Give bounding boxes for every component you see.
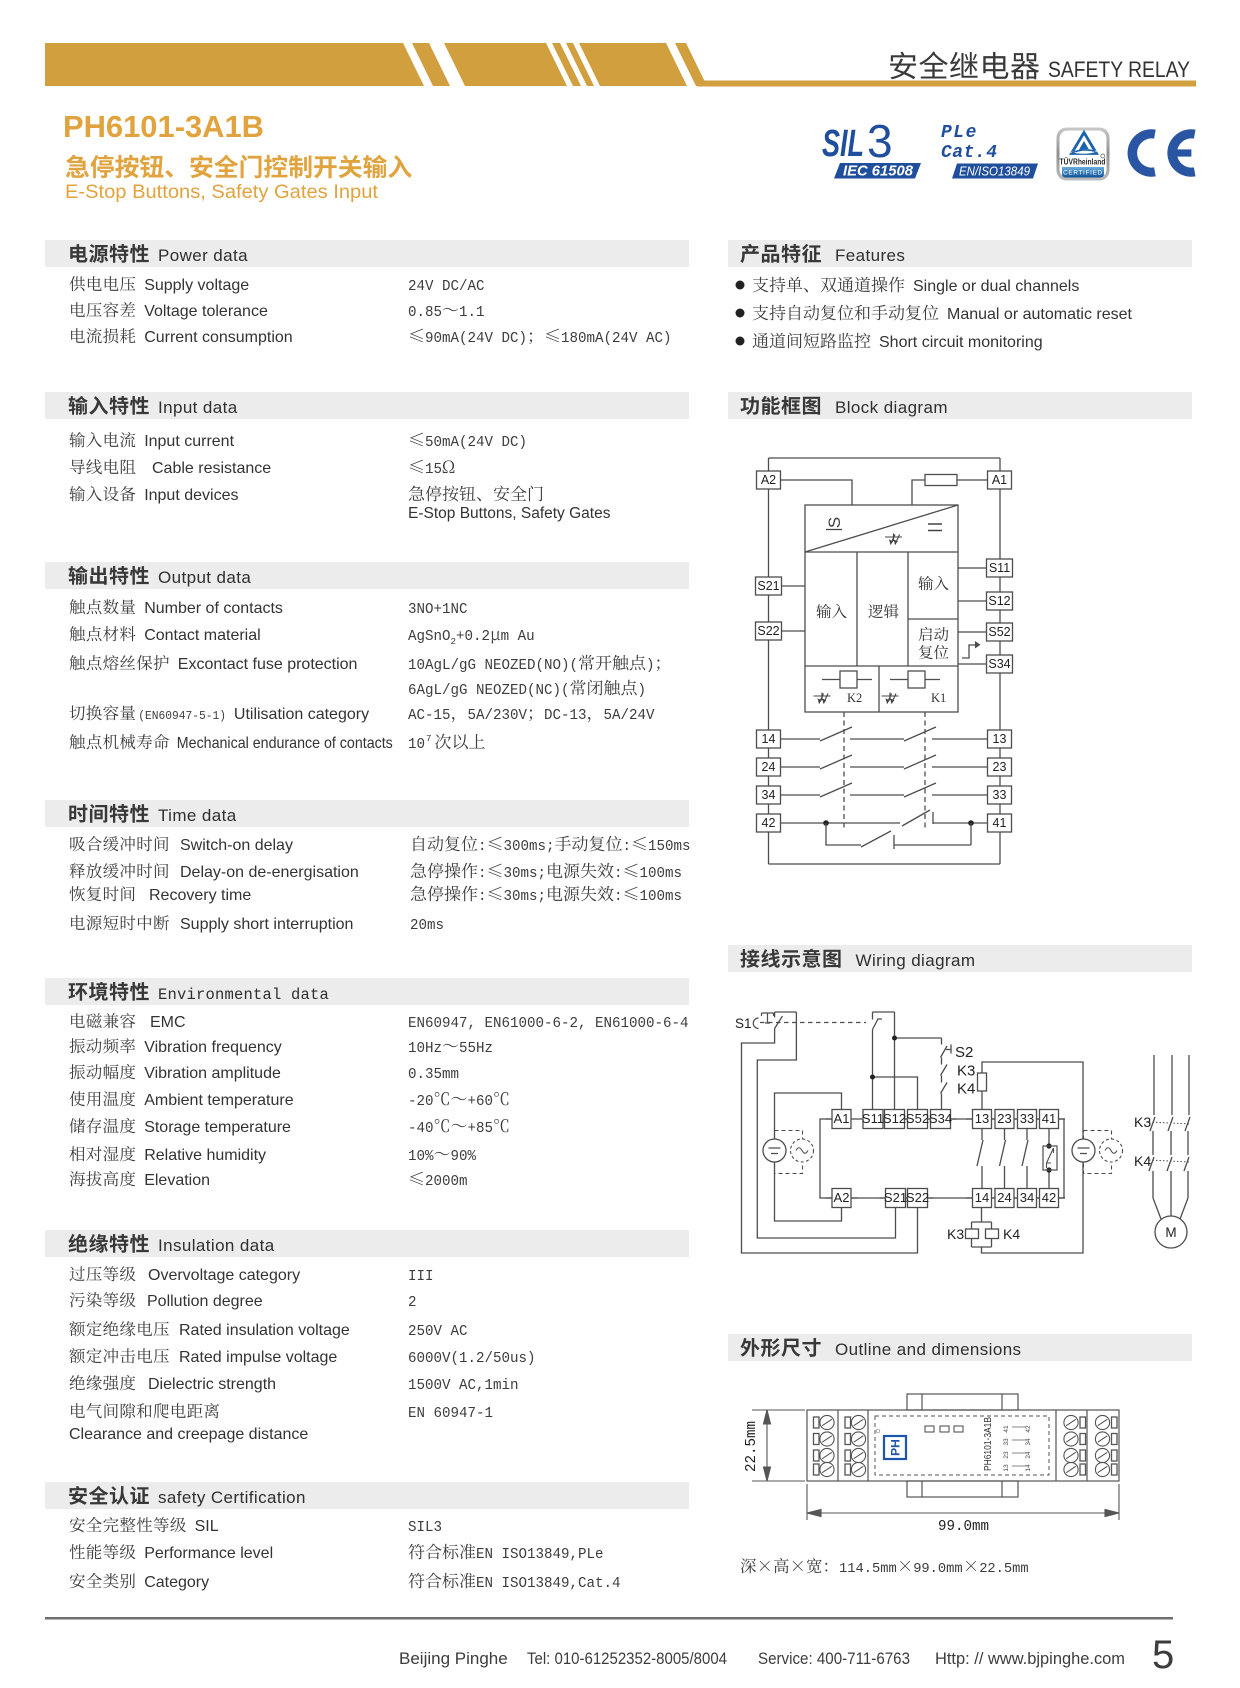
svg-text:Performance level: Performance level — [144, 1545, 273, 1562]
svg-text:42: 42 — [1042, 1190, 1056, 1205]
svg-text:Supply voltage: Supply voltage — [144, 277, 249, 294]
svg-text:TÜVRheinland: TÜVRheinland — [1060, 158, 1106, 167]
svg-text:EN ISO13849,PLe: EN ISO13849,PLe — [476, 1547, 604, 1563]
svg-text:-40: -40 — [408, 1121, 434, 1137]
svg-text:300ms;: 300ms; — [504, 839, 555, 855]
svg-text:+60: +60 — [468, 1094, 494, 1110]
svg-text:Wiring diagram: Wiring diagram — [856, 951, 976, 970]
svg-text:Cable resistance: Cable resistance — [152, 460, 271, 477]
svg-text:S2: S2 — [955, 1044, 973, 1061]
svg-text:34: 34 — [1020, 1190, 1034, 1205]
svg-text:K1: K1 — [931, 691, 946, 705]
svg-text:Utilisation category: Utilisation category — [234, 706, 369, 723]
svg-text:Http: // www.bjpinghe.com: Http: // www.bjpinghe.com — [935, 1649, 1125, 1668]
svg-text:S34: S34 — [929, 1111, 952, 1126]
svg-text:14: 14 — [1025, 1464, 1032, 1472]
svg-text:7: 7 — [426, 733, 432, 744]
svg-text:AgSnO: AgSnO — [408, 629, 451, 645]
svg-text:A2: A2 — [761, 473, 776, 487]
svg-text:A2: A2 — [834, 1190, 850, 1205]
svg-text:33: 33 — [1020, 1111, 1034, 1126]
svg-text:+0.2: +0.2 — [456, 629, 490, 645]
svg-text:13: 13 — [993, 732, 1007, 746]
svg-text:Vibration amplitude: Vibration amplitude — [144, 1065, 281, 1082]
svg-text:S11: S11 — [989, 561, 1010, 575]
svg-text::: : — [478, 866, 487, 882]
svg-text:Outline and dimensions: Outline and dimensions — [835, 1340, 1021, 1359]
svg-text:Single or dual channels: Single or dual channels — [913, 278, 1079, 295]
svg-text:6000V(1.2/50us): 6000V(1.2/50us) — [408, 1351, 536, 1367]
svg-text:10%: 10% — [408, 1149, 434, 1165]
svg-text:Number of contacts: Number of contacts — [144, 600, 283, 617]
svg-text:10AgL/gG NEOZED(NO)(: 10AgL/gG NEOZED(NO)( — [408, 658, 578, 674]
svg-text:EN/ISO13849: EN/ISO13849 — [959, 165, 1030, 179]
svg-text:14: 14 — [975, 1190, 989, 1205]
svg-text:IEC 61508: IEC 61508 — [843, 163, 914, 180]
svg-text:90%: 90% — [451, 1149, 477, 1165]
svg-text:Supply short interruption: Supply short interruption — [180, 916, 353, 933]
svg-text:Rated impulse voltage: Rated impulse voltage — [179, 1349, 337, 1366]
svg-text:50mA(24V DC): 50mA(24V DC) — [425, 435, 527, 451]
svg-text:5A/24V: 5A/24V — [604, 708, 655, 724]
svg-text:Input devices: Input devices — [144, 487, 238, 504]
svg-text:Input current: Input current — [144, 433, 234, 450]
svg-text::: : — [614, 889, 623, 905]
svg-text:K3: K3 — [957, 1063, 975, 1080]
svg-text:1.1: 1.1 — [459, 305, 485, 321]
svg-text:42: 42 — [762, 816, 776, 830]
svg-text:Cat.4: Cat.4 — [941, 143, 998, 163]
svg-text:20ms: 20ms — [410, 918, 444, 934]
svg-text:PH6101-3A1B: PH6101-3A1B — [63, 109, 264, 144]
svg-text:EMC: EMC — [150, 1014, 186, 1031]
svg-text:Power data: Power data — [158, 246, 248, 265]
svg-text:250V AC: 250V AC — [408, 1324, 468, 1340]
svg-text:Manual or automatic reset: Manual or automatic reset — [947, 306, 1133, 323]
svg-text:S12: S12 — [988, 594, 1010, 608]
svg-text:EN 60947-1: EN 60947-1 — [408, 1406, 493, 1422]
svg-text:42: 42 — [1025, 1425, 1032, 1433]
svg-text:14: 14 — [762, 732, 776, 746]
svg-text:safety Certification: safety Certification — [158, 1488, 306, 1507]
svg-text:150ms: 150ms — [648, 839, 691, 855]
svg-text:1500V AC,1min: 1500V AC,1min — [408, 1378, 519, 1394]
svg-text:EN ISO13849,Cat.4: EN ISO13849,Cat.4 — [476, 1576, 621, 1592]
svg-text:S21: S21 — [884, 1190, 907, 1205]
svg-text:S52: S52 — [988, 625, 1010, 639]
svg-text::: : — [478, 889, 487, 905]
svg-text:S22: S22 — [757, 624, 779, 638]
svg-text:-20: -20 — [408, 1094, 434, 1110]
svg-text:Tel: 010-61252352-8005/8004: Tel: 010-61252352-8005/8004 — [527, 1649, 727, 1668]
svg-text:S1: S1 — [735, 1016, 752, 1031]
svg-text:PH: PH — [889, 1439, 903, 1456]
svg-text:Output data: Output data — [158, 568, 251, 587]
svg-text:m Au: m Au — [501, 629, 535, 645]
svg-text:Dielectric strength: Dielectric strength — [148, 1376, 276, 1393]
svg-text:22.5mm: 22.5mm — [744, 1421, 760, 1472]
svg-text:E-Stop Buttons, Safety Gates: E-Stop Buttons, Safety Gates — [408, 505, 611, 522]
svg-text:Elevation: Elevation — [144, 1172, 210, 1189]
svg-text:Rated insulation voltage: Rated insulation voltage — [179, 1322, 350, 1339]
svg-text:33: 33 — [993, 788, 1007, 802]
svg-text:Delay-on de-energisation: Delay-on de-energisation — [180, 864, 359, 881]
svg-text:Current consumption: Current consumption — [144, 329, 293, 346]
svg-text:Time data: Time data — [158, 806, 237, 825]
svg-text:Vibration frequency: Vibration frequency — [144, 1039, 282, 1056]
svg-text:A1: A1 — [834, 1111, 850, 1126]
svg-text::: : — [614, 866, 623, 882]
svg-text:0.85: 0.85 — [408, 305, 442, 321]
svg-text:+85: +85 — [468, 1121, 494, 1137]
svg-text:Recovery time: Recovery time — [149, 887, 251, 904]
svg-text:22.5mm: 22.5mm — [979, 1561, 1028, 1577]
svg-text:AC-15: AC-15 — [408, 708, 451, 724]
svg-text:CERTIFIED: CERTIFIED — [1063, 170, 1103, 177]
svg-text:Relative humidity: Relative humidity — [144, 1147, 266, 1164]
svg-text:E-Stop Buttons, Safety Gates I: E-Stop Buttons, Safety Gates Input — [65, 181, 379, 203]
svg-text:III: III — [408, 1269, 434, 1285]
svg-text:Pollution degree: Pollution degree — [147, 1293, 263, 1310]
svg-text:K2: K2 — [847, 691, 862, 705]
svg-text:S34: S34 — [988, 657, 1010, 671]
svg-text:Features: Features — [835, 246, 905, 265]
svg-text:30ms;: 30ms; — [504, 889, 547, 905]
svg-text:3NO+1NC: 3NO+1NC — [408, 602, 468, 618]
svg-text:2000m: 2000m — [425, 1174, 468, 1190]
svg-text:33: 33 — [1003, 1438, 1010, 1446]
svg-text::: : — [623, 839, 632, 855]
svg-text:Environmental data: Environmental data — [158, 986, 329, 1004]
svg-text:Ambient temperature: Ambient temperature — [144, 1092, 294, 1109]
svg-text:114.5mm: 114.5mm — [839, 1561, 897, 1577]
svg-text:6AgL/gG NEOZED(NC)(: 6AgL/gG NEOZED(NC)( — [408, 683, 570, 699]
svg-text:Short circuit monitoring: Short circuit monitoring — [879, 334, 1043, 351]
svg-text:24V DC/AC: 24V DC/AC — [408, 279, 485, 295]
svg-text:A1: A1 — [992, 473, 1007, 487]
svg-text:SIL3: SIL3 — [408, 1520, 442, 1536]
svg-text:100ms: 100ms — [640, 866, 683, 882]
svg-text:5A/230V: 5A/230V — [468, 708, 528, 724]
svg-text:3: 3 — [867, 115, 893, 167]
svg-text:): ) — [646, 658, 655, 674]
svg-text:Input data: Input data — [158, 398, 238, 417]
svg-text:S21: S21 — [757, 579, 779, 593]
svg-text:SAFETY RELAY: SAFETY RELAY — [1048, 57, 1190, 82]
svg-text:EN60947, EN61000-6-2, EN61000-: EN60947, EN61000-6-2, EN61000-6-4 — [408, 1016, 689, 1032]
svg-text:PLe: PLe — [941, 123, 978, 143]
svg-text:S22: S22 — [906, 1190, 929, 1205]
svg-text:41: 41 — [1042, 1111, 1056, 1126]
svg-text:24: 24 — [1025, 1451, 1032, 1459]
svg-text:Service: 400-711-6763: Service: 400-711-6763 — [758, 1649, 910, 1668]
svg-text:10Hz: 10Hz — [408, 1041, 442, 1057]
svg-text:41: 41 — [993, 816, 1007, 830]
svg-text:Category: Category — [144, 1574, 209, 1591]
svg-text:30ms;: 30ms; — [504, 866, 547, 882]
svg-text:Block diagram: Block diagram — [835, 398, 948, 417]
svg-text:PH6101-3A1B: PH6101-3A1B — [983, 1417, 994, 1471]
svg-text:S11: S11 — [862, 1111, 884, 1126]
svg-text:SIL: SIL — [822, 123, 864, 165]
svg-text:13: 13 — [975, 1111, 989, 1126]
svg-text:34: 34 — [1025, 1438, 1032, 1446]
svg-text:): ) — [638, 683, 647, 699]
svg-text:23: 23 — [993, 760, 1007, 774]
svg-text:24: 24 — [997, 1190, 1011, 1205]
svg-text:Voltage tolerance: Voltage tolerance — [144, 303, 268, 320]
svg-text:24: 24 — [762, 760, 776, 774]
svg-text:(EN60947-5-1): (EN60947-5-1) — [138, 710, 226, 723]
svg-text:K4: K4 — [1003, 1226, 1020, 1242]
svg-text:Insulation data: Insulation data — [158, 1236, 275, 1255]
svg-text:10: 10 — [408, 737, 425, 753]
svg-text:99.0mm: 99.0mm — [913, 1561, 963, 1577]
svg-text:K3: K3 — [1134, 1114, 1151, 1130]
svg-text:Switch-on delay: Switch-on delay — [180, 837, 293, 854]
svg-text:100ms: 100ms — [640, 889, 683, 905]
svg-text:41: 41 — [1003, 1425, 1010, 1433]
svg-text:13: 13 — [1003, 1464, 1010, 1472]
svg-text:DC-13: DC-13 — [544, 708, 587, 724]
svg-text:K4: K4 — [957, 1081, 975, 1098]
svg-text:Storage temperature: Storage temperature — [144, 1119, 291, 1136]
svg-text:55Hz: 55Hz — [459, 1041, 493, 1057]
svg-text:23: 23 — [997, 1111, 1011, 1126]
svg-text:2: 2 — [408, 1295, 417, 1311]
svg-text:S52: S52 — [906, 1111, 929, 1126]
svg-text:5: 5 — [1152, 1633, 1174, 1677]
svg-text:Mechanical endurance of contac: Mechanical endurance of contacts — [177, 735, 393, 752]
svg-text:K3: K3 — [947, 1226, 964, 1242]
svg-text:99.0mm: 99.0mm — [938, 1519, 989, 1535]
svg-text:23: 23 — [1003, 1451, 1010, 1459]
svg-text:34: 34 — [762, 788, 776, 802]
svg-text:S: S — [825, 517, 844, 528]
svg-text:0.35mm: 0.35mm — [408, 1067, 459, 1083]
svg-text:15: 15 — [425, 462, 442, 478]
svg-text:K4: K4 — [1134, 1153, 1151, 1169]
svg-text:Overvoltage category: Overvoltage category — [148, 1267, 300, 1284]
svg-text:M: M — [1165, 1225, 1176, 1240]
svg-text::: : — [478, 839, 487, 855]
svg-text:180mA(24V AC): 180mA(24V AC) — [561, 331, 672, 347]
svg-text:Clearance and creepage distanc: Clearance and creepage distance — [69, 1426, 308, 1443]
svg-text:SIL: SIL — [195, 1518, 219, 1535]
svg-text:90mA(24V DC): 90mA(24V DC) — [425, 331, 527, 347]
svg-text:Contact material: Contact material — [144, 627, 261, 644]
svg-text:Excontact fuse protection: Excontact fuse protection — [178, 656, 358, 673]
svg-text:Beijing Pinghe: Beijing Pinghe — [399, 1649, 508, 1668]
svg-text:S12: S12 — [883, 1111, 906, 1126]
